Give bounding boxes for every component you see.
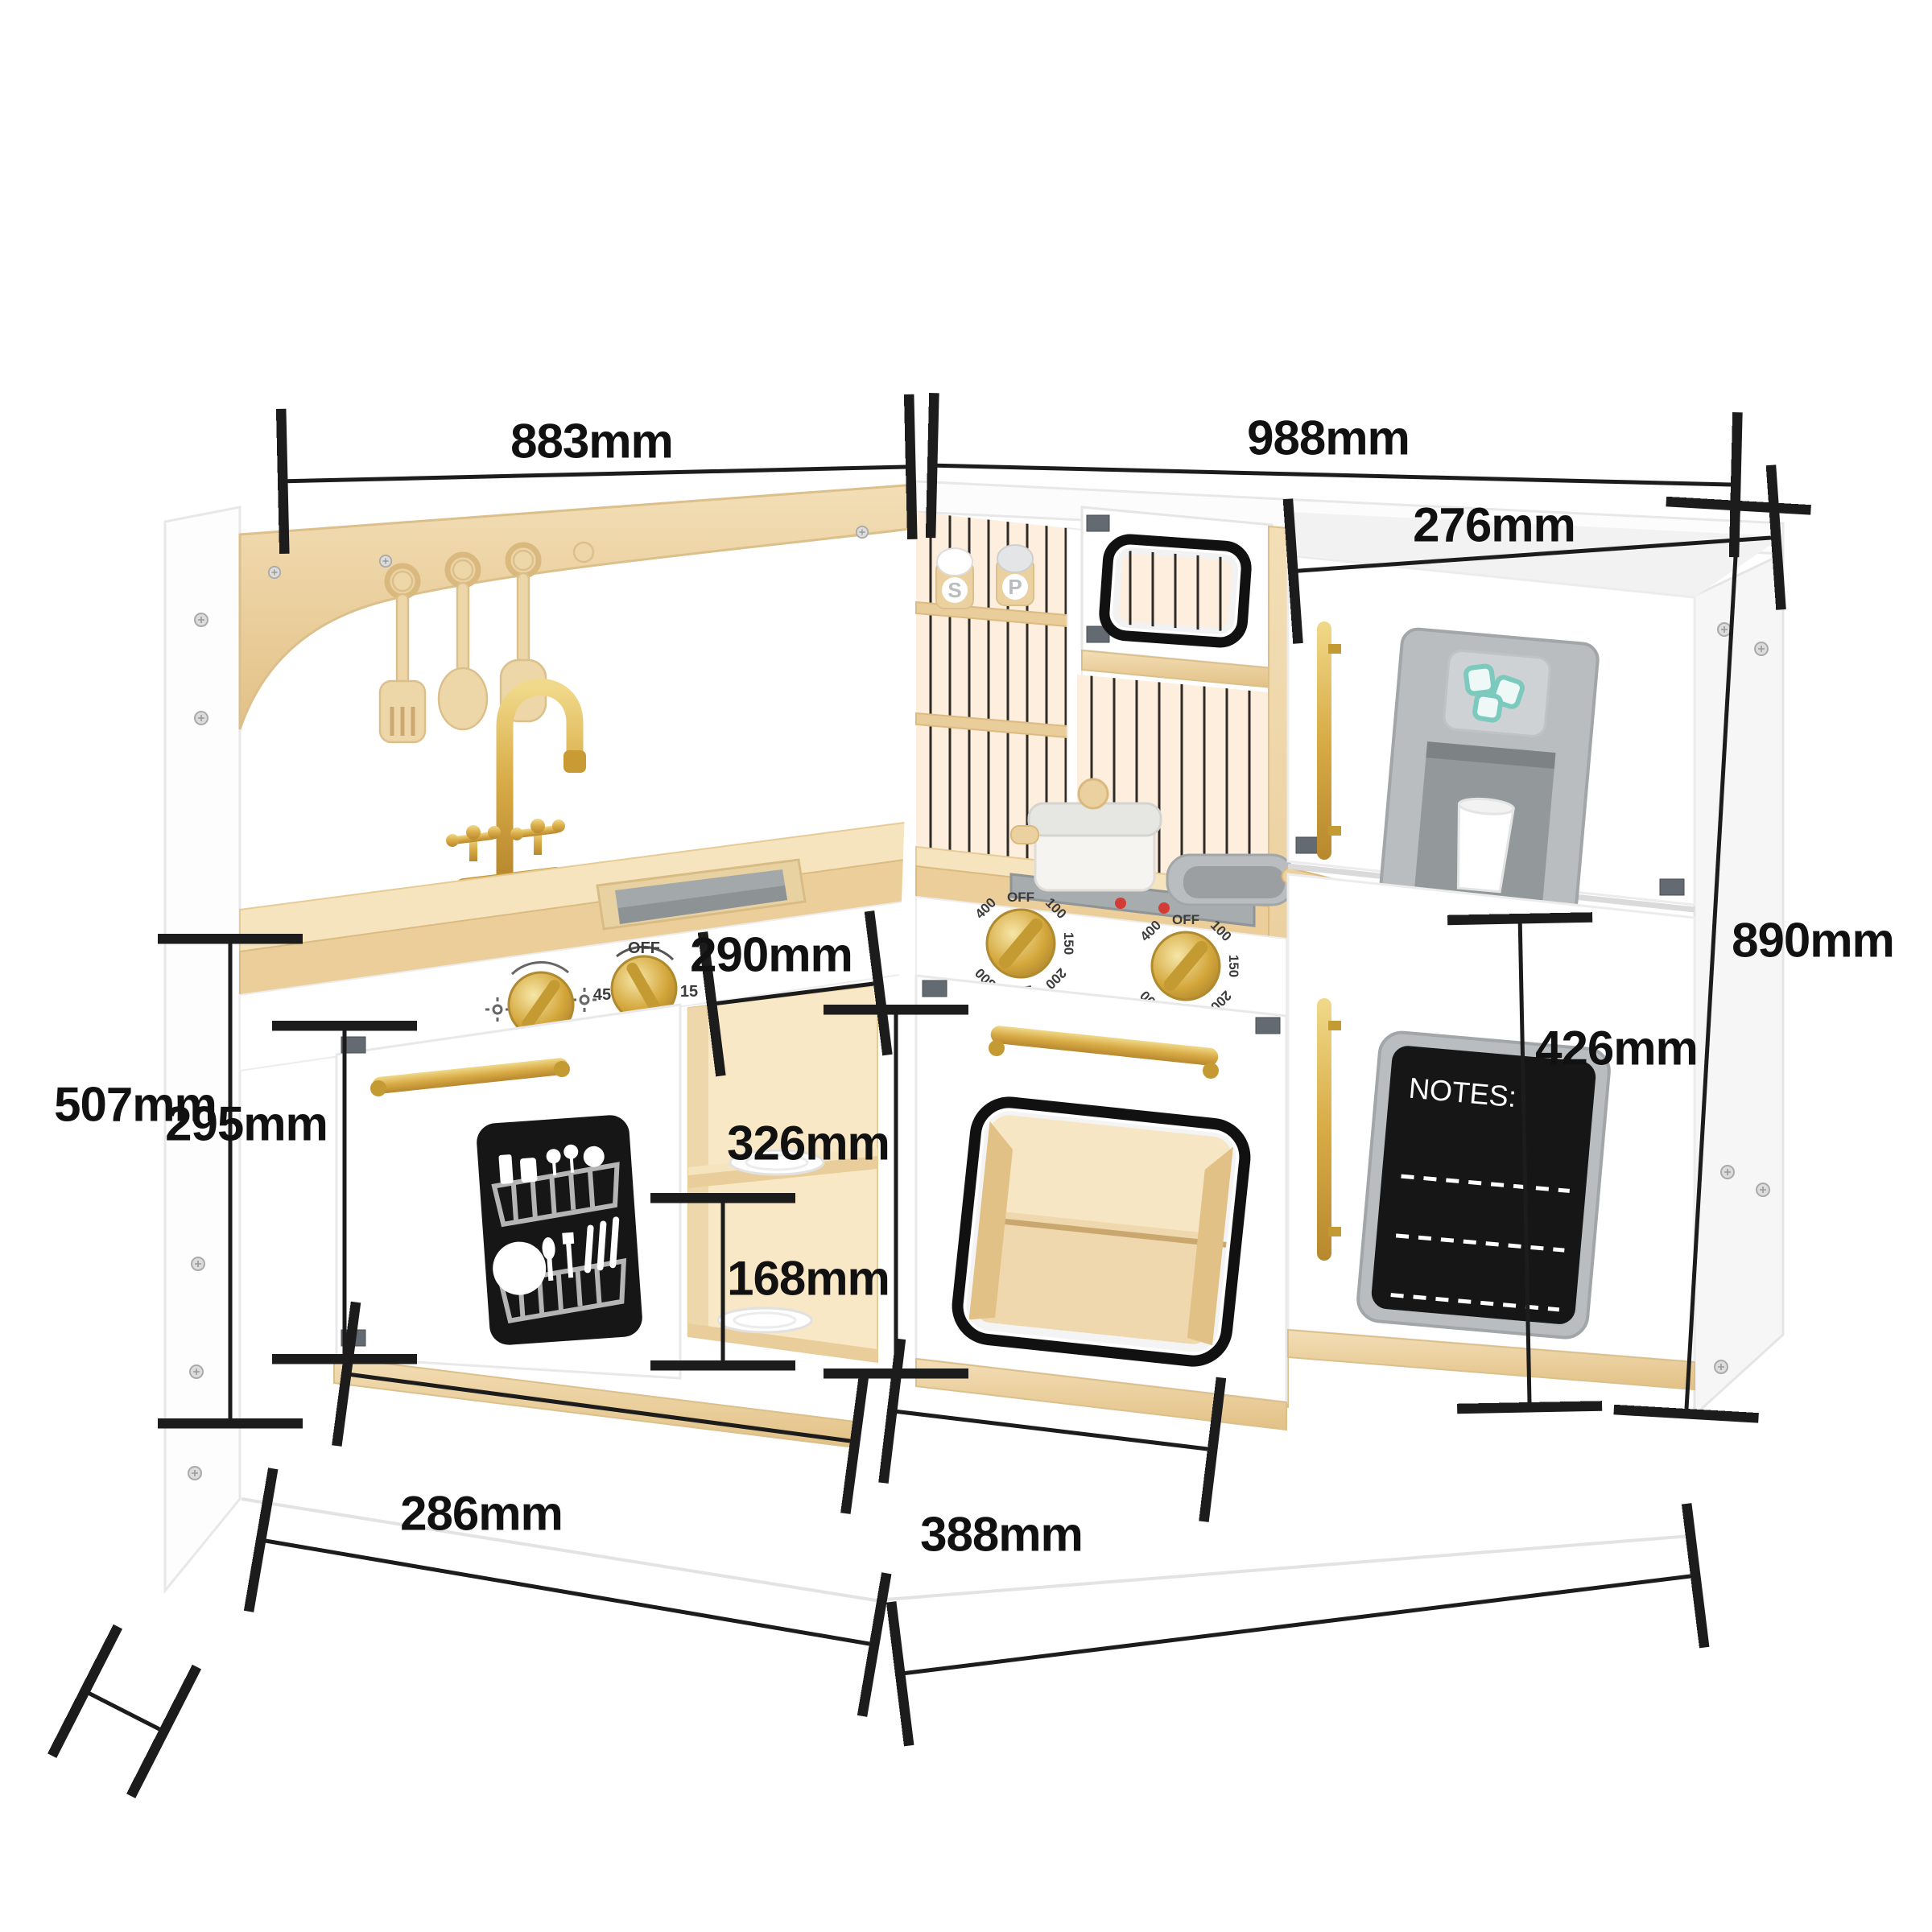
dim-label-168: 168mm xyxy=(727,1251,890,1307)
dim-label-286: 286mm xyxy=(400,1486,563,1542)
screw-icon xyxy=(195,613,208,626)
salt-shaker-letter: S xyxy=(947,578,961,602)
oven-dial-mark: OFF xyxy=(1172,912,1199,927)
hinge-bracket-icon xyxy=(1087,515,1109,531)
kitchen-illustration: OFF 15 30 45 xyxy=(0,0,1932,1932)
oven: OFF 100 150 200 250 300 400 OFF 100 150 … xyxy=(916,890,1286,1430)
hinge-bracket-icon xyxy=(1256,1018,1280,1034)
pepper-shaker: P xyxy=(997,545,1034,605)
screw-icon xyxy=(190,1365,203,1378)
dim-label-883: 883mm xyxy=(510,414,673,469)
hinge-bracket-icon xyxy=(1296,837,1320,853)
oven-dial-mark: 150 xyxy=(1226,955,1241,977)
timer-mark: 45 xyxy=(593,986,611,1004)
salt-shaker: S xyxy=(936,548,973,609)
timer-mark: OFF xyxy=(628,939,660,957)
dishwasher-door xyxy=(336,1005,680,1378)
pepper-shaker-letter: P xyxy=(1008,575,1022,599)
screw-icon xyxy=(1715,1360,1728,1373)
screw-icon xyxy=(195,712,208,724)
dim-label-426: 426mm xyxy=(1535,1021,1698,1076)
microwave xyxy=(1082,507,1272,687)
hinge-bracket-icon xyxy=(923,980,947,997)
screw-icon xyxy=(1721,1166,1734,1179)
screw-icon xyxy=(1718,623,1731,636)
dim-label-290: 290mm xyxy=(690,927,852,983)
notes-board: NOTES: xyxy=(1356,1030,1611,1340)
screw-icon xyxy=(192,1257,204,1270)
dim-line-988 xyxy=(927,465,1731,485)
peg-icon xyxy=(574,543,593,562)
play-kitchen-dimension-diagram: OFF 15 30 45 xyxy=(0,0,1932,1932)
dim-label-988: 988mm xyxy=(1247,411,1410,466)
screw-icon xyxy=(857,526,868,538)
right-side-panel xyxy=(1695,554,1783,1415)
burner-button-icon xyxy=(1115,898,1126,909)
dim-label-890: 890mm xyxy=(1732,913,1894,968)
screw-icon xyxy=(188,1467,201,1480)
peg-icon xyxy=(514,551,533,570)
dim-label-276: 276mm xyxy=(1413,497,1575,553)
screw-icon xyxy=(269,567,280,578)
oven-dial-mark: OFF xyxy=(1007,890,1034,905)
screw-icon xyxy=(380,555,391,567)
dim-label-388: 388mm xyxy=(920,1507,1083,1563)
peg-icon xyxy=(393,572,412,591)
peg-icon xyxy=(453,560,473,580)
screw-icon xyxy=(1757,1183,1769,1196)
ice-dispenser xyxy=(1380,628,1600,918)
timer-mark: 15 xyxy=(680,983,698,1001)
oven-dial-mark: 150 xyxy=(1061,932,1076,955)
pot-knob-icon xyxy=(1079,779,1108,808)
screw-icon xyxy=(1755,642,1768,655)
hinge-bracket-icon xyxy=(1660,879,1684,895)
dim-label-295: 295mm xyxy=(165,1096,328,1152)
dim-label-326: 326mm xyxy=(727,1116,890,1171)
dishwasher-panel-graphic xyxy=(476,1114,644,1347)
floor-guide-foot xyxy=(80,1689,159,1729)
oven-window xyxy=(954,1099,1248,1364)
burner-button-icon xyxy=(1158,902,1170,914)
faucet-spout-icon xyxy=(563,750,586,773)
dim-line-883 xyxy=(278,467,906,481)
